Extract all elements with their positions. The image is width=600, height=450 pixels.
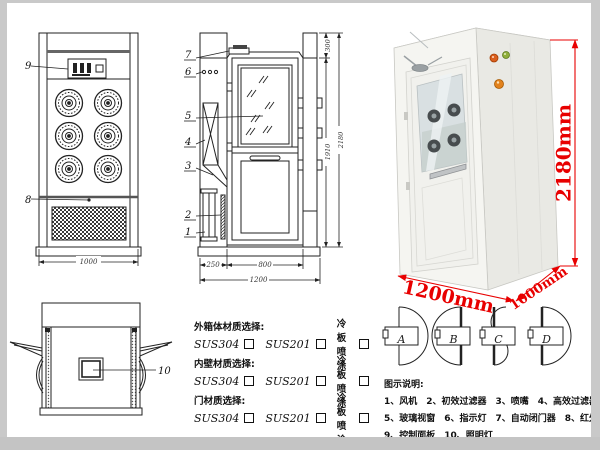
callout-label: 4: [184, 137, 191, 148]
return-grille: [52, 207, 126, 240]
product-photo: 2180mm 1200mm 1000mm: [382, 12, 584, 316]
option-label: SUS201: [265, 412, 310, 425]
top-view-drawing: 10: [8, 298, 193, 440]
option-label: SUS304: [194, 375, 239, 388]
section-view-drawing: 7 6 5 4 3 2 1 300 1910: [183, 25, 358, 290]
callout-label: 10: [158, 366, 171, 377]
checkbox[interactable]: [316, 339, 326, 349]
legend-item: 5、玻璃视窗: [384, 411, 435, 424]
checkbox[interactable]: [316, 376, 326, 386]
callout-label: 6: [185, 67, 192, 78]
amber-button: [495, 80, 504, 89]
callout-label: 1: [185, 227, 191, 238]
dim-label-250: 250: [205, 261, 220, 269]
chamber-body: [42, 327, 140, 408]
material-selection: 外箱体材质选择: SUS304 SUS201 冷板喷涂 内壁材质选择: SUS3…: [194, 314, 380, 427]
front-view-drawing: 9 8 1000: [20, 25, 175, 273]
bottom-base: [40, 408, 142, 415]
parts-legend: 图示说明: 1、风机 2、初效过滤器 3、喷嘴 4、高效过滤器 5、玻璃视窗 6…: [384, 377, 598, 445]
door-type-a: A: [383, 307, 428, 365]
checkbox[interactable]: [359, 376, 369, 386]
door-3d: [404, 58, 478, 272]
page-frame-left: [0, 0, 7, 450]
door-type-b: B: [432, 307, 470, 365]
page-frame-right: [591, 0, 600, 450]
material-options: SUS304 SUS201 冷板喷涂: [194, 337, 380, 351]
cabinet-3d: [394, 28, 558, 290]
checkbox[interactable]: [244, 413, 254, 423]
legend-item: 6、指示灯: [444, 411, 486, 424]
door-type-icons: A B C D: [383, 299, 573, 373]
checkbox[interactable]: [244, 376, 254, 386]
callout-label: 7: [185, 50, 192, 61]
dim-label-800: 800: [258, 261, 272, 269]
prefilter-strip: [221, 195, 225, 239]
material-options: SUS304 SUS201 冷板喷涂: [194, 374, 380, 388]
material-options: SUS304 SUS201 冷板喷涂: [194, 411, 380, 425]
door-type-d: D: [528, 307, 571, 365]
option-label: SUS201: [265, 375, 310, 388]
callout-label: 8: [25, 195, 31, 206]
callout-label: 3: [185, 161, 191, 172]
legend-item: 3、喷嘴: [496, 394, 529, 407]
callout-label: 9: [25, 61, 32, 72]
left-door-wing: [10, 342, 43, 393]
cabinet-base: [36, 247, 141, 256]
door-type-label: D: [541, 333, 551, 346]
hinge: [406, 182, 410, 190]
option-label: SUS304: [194, 338, 239, 351]
air-shower-spec-sheet: 9 8 1000: [0, 0, 600, 450]
callout-label: 5: [185, 111, 191, 122]
dim-label-300: 300: [324, 39, 332, 51]
hinge: [404, 112, 408, 120]
top-band: [42, 303, 140, 327]
door-type-c: C: [480, 307, 515, 365]
photo-height-label: 2180mm: [552, 104, 576, 202]
legend-item: 1、风机: [384, 394, 417, 407]
option-label: SUS201: [265, 338, 310, 351]
door-closer: [229, 45, 249, 54]
checkbox[interactable]: [316, 413, 326, 423]
height-dimensions: 300 1910 2180: [319, 33, 345, 247]
legend-row: 1、风机 2、初效过滤器 3、喷嘴 4、高效过滤器: [384, 394, 598, 407]
page-frame-bottom: [0, 437, 600, 450]
legend-item: 7、自动闭门器: [496, 411, 556, 424]
dim-label-2180: 2180: [337, 132, 345, 150]
checkbox[interactable]: [359, 413, 369, 423]
door-type-label: B: [448, 333, 457, 346]
checkbox[interactable]: [359, 339, 369, 349]
red-button: [490, 54, 498, 62]
legend-title: 图示说明:: [384, 377, 598, 390]
page-frame-top: [0, 0, 600, 3]
door-type-label: A: [397, 333, 406, 346]
control-panel: [68, 59, 106, 78]
legend-row: 5、玻璃视窗 6、指示灯 7、自动闭门器 8、红外线感应器: [384, 411, 598, 424]
green-button: [503, 52, 510, 59]
checkbox[interactable]: [244, 339, 254, 349]
right-nozzle-column: [303, 33, 317, 247]
dim-label-1910: 1910: [324, 144, 332, 161]
side-face: [476, 28, 558, 290]
section-base: [198, 247, 320, 256]
callout-label: 2: [184, 210, 191, 221]
dim-label-1200: 1200: [250, 276, 268, 284]
legend-item: 4、高效过滤器: [538, 394, 598, 407]
legend-item: 2、初效过滤器: [426, 394, 486, 407]
door-type-label: C: [494, 333, 503, 346]
top-band: [47, 50, 130, 53]
option-label: SUS304: [194, 412, 239, 425]
dim-label-1000: 1000: [80, 258, 98, 266]
